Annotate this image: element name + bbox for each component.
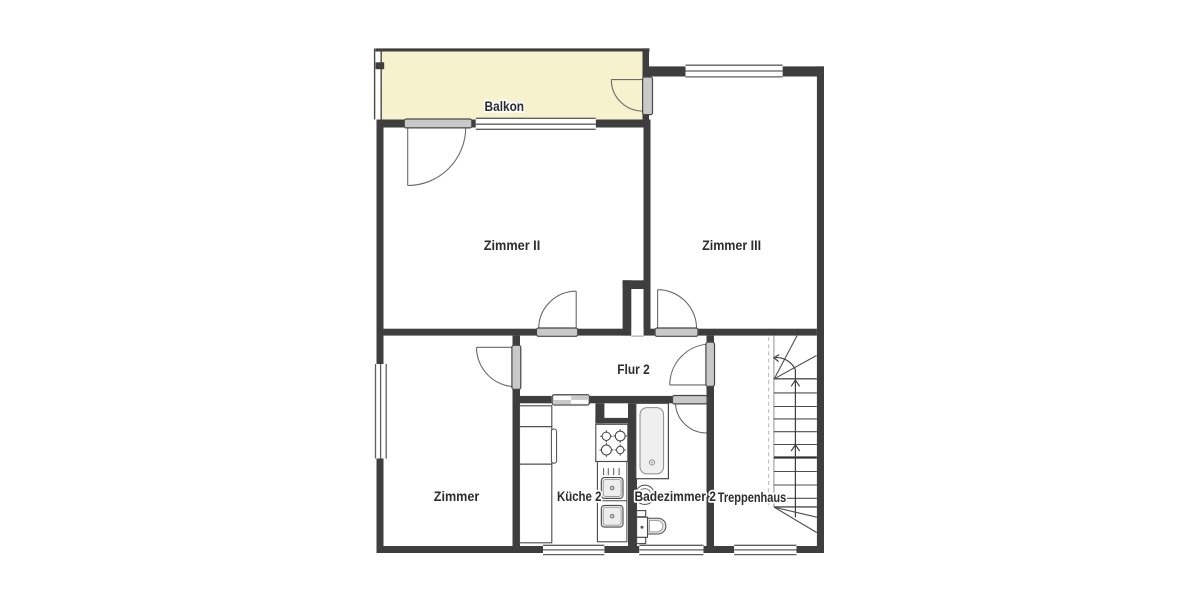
- svg-text:Flur 2: Flur 2: [617, 362, 650, 377]
- svg-text:Küche 2: Küche 2: [557, 489, 602, 504]
- svg-text:Zimmer: Zimmer: [434, 489, 480, 504]
- svg-text:Zimmer II: Zimmer II: [484, 238, 541, 253]
- svg-text:Treppenhaus: Treppenhaus: [718, 490, 787, 505]
- svg-text:Balkon: Balkon: [485, 99, 525, 114]
- svg-text:Zimmer III: Zimmer III: [702, 238, 761, 253]
- svg-text:Badezimmer 2: Badezimmer 2: [634, 489, 716, 504]
